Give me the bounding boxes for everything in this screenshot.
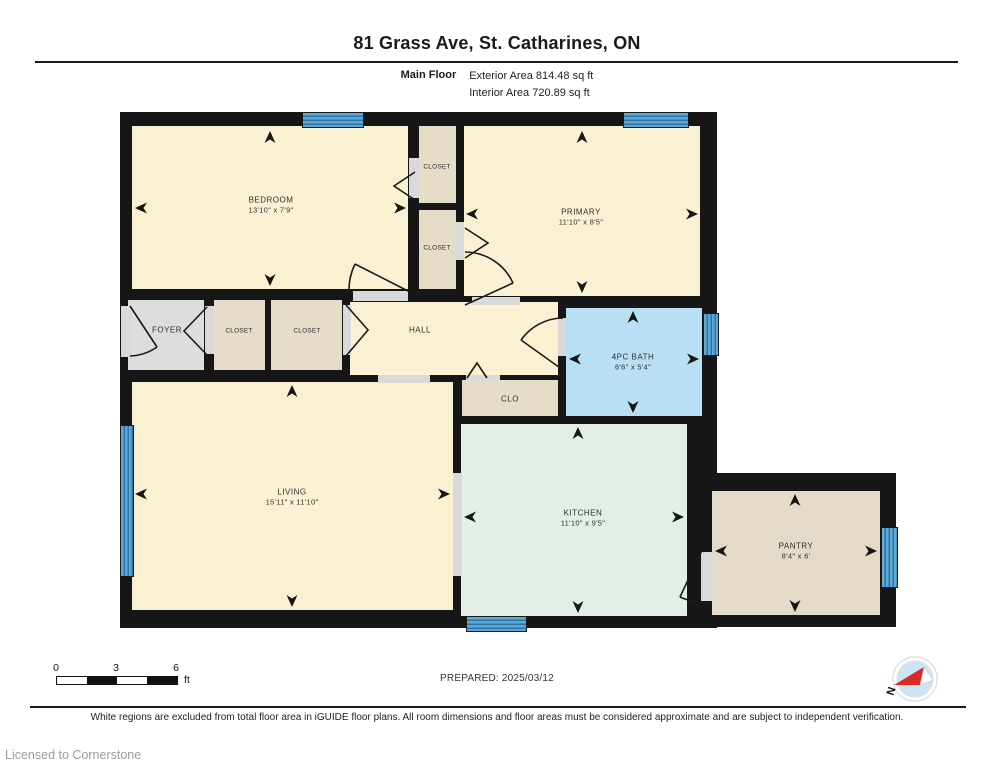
label-closet-top-1: CLOSET [423, 164, 450, 171]
room-foyer [128, 300, 204, 370]
label-foyer: FOYER [152, 326, 182, 335]
label-bath: 4PC BATH 6'6" x 5'4" [612, 353, 655, 372]
room-closet-mid-1 [214, 300, 265, 370]
room-name: KITCHEN [561, 509, 605, 518]
opening-hall-living [378, 375, 430, 383]
label-pantry: PANTRY 8'4" x 6' [779, 542, 814, 561]
label-closet-mid-2: CLOSET [293, 328, 320, 335]
room-dims: 15'11" x 11'10" [266, 498, 319, 507]
room-name: 4PC BATH [612, 353, 655, 362]
opening-closet-mid-2 [343, 305, 351, 355]
room-dims: 6'6" x 5'4" [612, 363, 655, 372]
room-name: CLOSET [293, 328, 320, 335]
room-name: PANTRY [779, 542, 814, 551]
opening-bath-door [558, 318, 566, 356]
label-bedroom: BEDROOM 13'10" x 7'9" [248, 196, 293, 215]
label-closet-mid-1: CLOSET [225, 328, 252, 335]
opening-living-kitchen [453, 473, 462, 576]
opening-entry [121, 306, 132, 357]
room-name: PRIMARY [559, 208, 603, 217]
label-closet-top-2: CLOSET [423, 245, 450, 252]
opening-primary-door [472, 297, 520, 305]
room-dims: 13'10" x 7'9" [248, 206, 293, 215]
room-name: HALL [409, 326, 431, 335]
footer-divider [30, 706, 966, 708]
label-living: LIVING 15'11" x 11'10" [266, 488, 319, 507]
room-dims: 11'10" x 8'5" [559, 218, 603, 227]
compass-icon: N [884, 652, 946, 710]
window-bath-right [703, 313, 719, 356]
opening-bedroom-door [353, 291, 408, 301]
window-kitchen-bottom [466, 616, 527, 632]
opening-clo-door [466, 375, 500, 381]
room-name: CLOSET [423, 164, 450, 171]
floor-plan: BEDROOM 13'10" x 7'9" CLOSET CLOSET PRIM… [0, 0, 994, 768]
label-clo: CLO [501, 395, 519, 404]
prepared-date: PREPARED: 2025/03/12 [0, 673, 994, 684]
label-hall: HALL [409, 326, 431, 335]
opening-closet-top-1 [409, 158, 419, 198]
room-name: FOYER [152, 326, 182, 335]
disclaimer-text: White regions are excluded from total fl… [0, 712, 994, 723]
room-dims: 8'4" x 6' [779, 552, 814, 561]
room-name: BEDROOM [248, 196, 293, 205]
opening-closet-mid-1 [205, 306, 214, 354]
window-living-left [120, 425, 134, 577]
license-text: Licensed to Cornerstone [5, 748, 141, 762]
opening-kitchen-pantry [701, 552, 712, 601]
room-closet-mid-2 [271, 300, 342, 370]
room-name: LIVING [266, 488, 319, 497]
opening-closet-top-2 [456, 222, 464, 260]
room-name: CLO [501, 395, 519, 404]
label-kitchen: KITCHEN 11'10" x 9'5" [561, 509, 605, 528]
window-bedroom-top [302, 112, 364, 128]
room-name: CLOSET [423, 245, 450, 252]
window-pantry-right [881, 527, 898, 588]
label-primary: PRIMARY 11'10" x 8'5" [559, 208, 603, 227]
room-dims: 11'10" x 9'5" [561, 519, 605, 528]
room-name: CLOSET [225, 328, 252, 335]
room-hall [350, 302, 558, 375]
window-primary-top [623, 112, 689, 128]
